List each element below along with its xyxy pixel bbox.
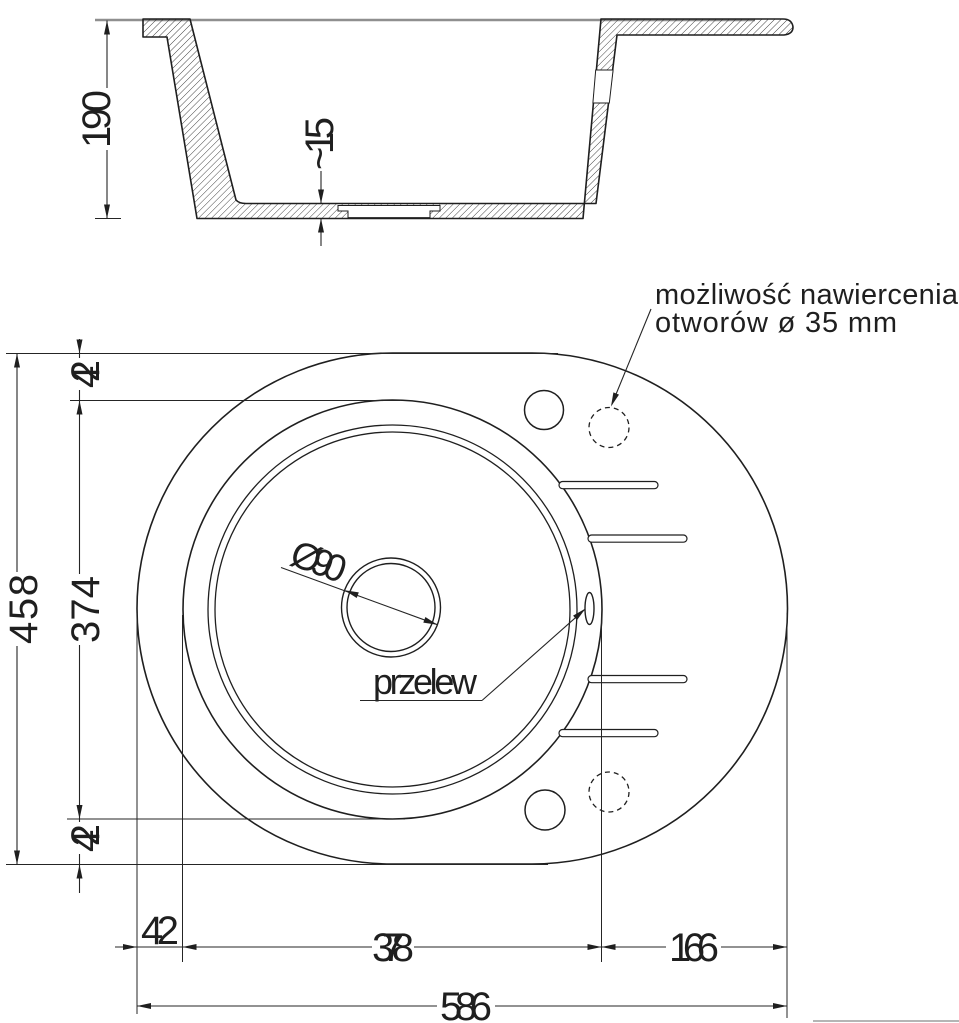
overflow-slot [585,593,594,625]
arrowhead [137,1003,151,1009]
drill-note-callout: możliwość nawiercenia otworów ø 35 mm [611,279,959,407]
arrowhead [77,401,83,415]
drill-note-line2: otworów ø 35 mm [655,307,897,339]
dimensions-bottom: 42 378 166 586 [115,909,787,1023]
dim-378-label: 378 [372,926,414,970]
dim-42-h-label: 42 [141,909,179,953]
sink-section-body [143,19,793,219]
arrowhead [773,1003,787,1009]
dim-374-label: 374 [64,576,108,643]
sink-outline [137,353,788,864]
arrowhead [183,944,197,950]
drawing-canvas: 190 ~15 [0,0,959,1023]
arrowhead [602,944,616,950]
plan-view: Ø90 przelew możliwość nawiercenia otworó… [137,279,959,1018]
arrowhead [14,851,20,865]
sink-technical-drawing: 190 ~15 [0,0,959,1023]
groove [588,676,687,683]
dim-15-label: ~15 [298,117,342,170]
arrowhead [77,340,83,354]
dim-190-label: 190 [75,90,119,148]
arrowhead [318,190,324,204]
arrowhead [14,354,20,368]
arrowhead [77,865,83,879]
dim-42-bottom-label: 42 [64,824,108,852]
arrowhead [773,944,787,950]
groove [559,482,658,489]
arrowhead [318,219,324,233]
dim-166-label: 166 [669,926,719,970]
faucet-hole-top [525,391,564,430]
overflow-label: przelew [373,661,478,702]
cross-section-view: 190 ~15 [75,19,793,246]
arrowhead [104,21,110,35]
arrowhead [588,944,602,950]
arrowhead [77,805,83,819]
dim-458-label: 458 [2,574,46,644]
groove [559,730,658,737]
arrowhead [104,205,110,219]
dim-42-top-label: 42 [64,360,108,388]
arrowhead [123,944,137,950]
groove [588,535,687,542]
faucet-hole-bottom [525,790,565,830]
drain-recess-notch [338,206,440,218]
overflow-opening-section [593,70,613,103]
optional-hole-top-dashed [589,408,629,448]
dim-586-label: 586 [440,985,492,1023]
